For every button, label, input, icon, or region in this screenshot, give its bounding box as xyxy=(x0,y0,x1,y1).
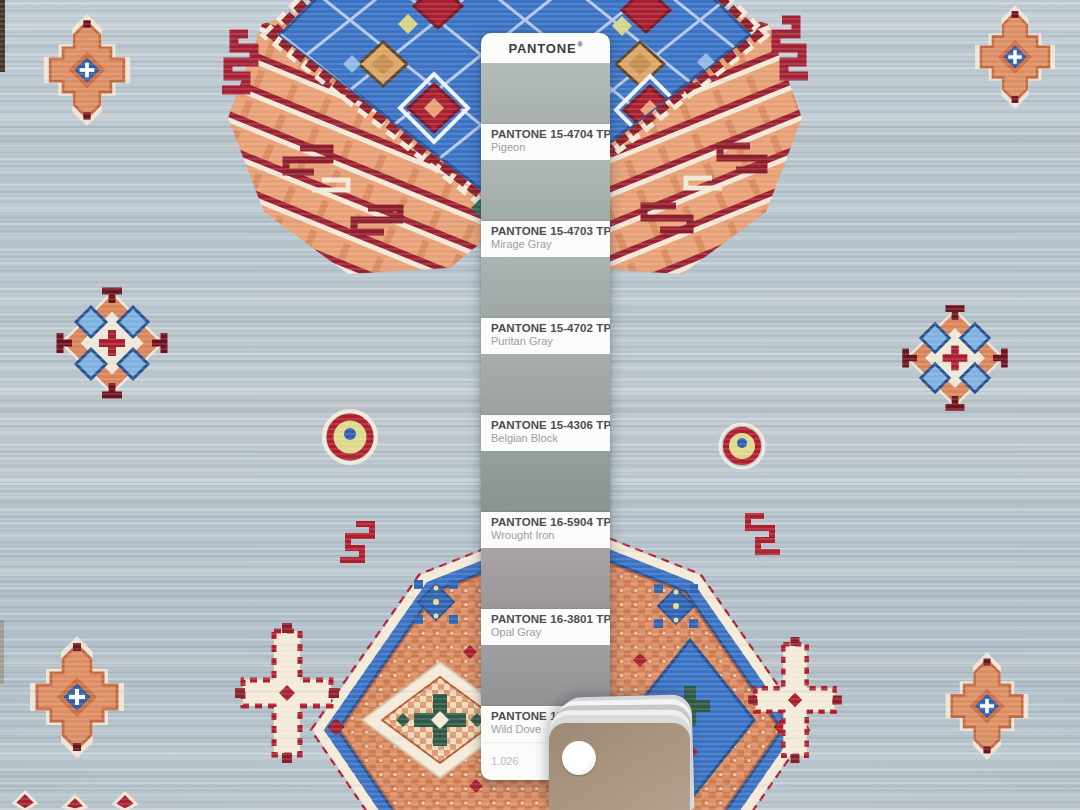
chip-code: PANTONE 15-4703 TPG xyxy=(491,225,604,237)
deck-top-card xyxy=(549,723,690,810)
chip-name: Pigeon xyxy=(491,141,604,153)
color-chip-wrought-iron xyxy=(481,451,610,512)
rug-edge-sliver xyxy=(0,0,5,72)
blue-flower-motif xyxy=(654,584,698,628)
corner-motif-bottom-left xyxy=(30,636,124,758)
chip-name: Opal Gray xyxy=(491,626,604,638)
color-chip-mirage-gray xyxy=(481,160,610,221)
chip-name: Wrought Iron xyxy=(491,529,604,541)
ring-dot-left xyxy=(324,411,376,463)
chip-code: PANTONE 15-4306 TPG xyxy=(491,419,604,431)
ring-dot-right xyxy=(720,424,764,468)
chip-label: PANTONE 15-4702 TPG Puritan Gray xyxy=(481,318,610,354)
chip-code: PANTONE 16-5904 TPG xyxy=(491,516,604,528)
chip-code: PANTONE 15-4704 TPG xyxy=(491,128,604,140)
rivet-hole-icon xyxy=(562,741,596,775)
flower-motif-right xyxy=(906,309,1005,408)
pantone-brand-text: PANTONE xyxy=(508,41,576,56)
bottom-edge-diamonds xyxy=(14,792,136,810)
chip-label: PANTONE 15-4306 TPG Belgian Block xyxy=(481,415,610,451)
pantone-logo: PANTONE® xyxy=(481,33,610,63)
registered-mark: ® xyxy=(577,41,582,48)
chip-label: PANTONE 16-5904 TPG Wrought Iron xyxy=(481,512,610,548)
corner-motif-top-right xyxy=(975,5,1055,109)
corner-motif-top-left xyxy=(44,14,130,126)
blue-flower-motif xyxy=(414,580,458,624)
color-chip-pigeon xyxy=(481,63,610,124)
pantone-strip: PANTONE® PANTONE 15-4704 TPG Pigeon PANT… xyxy=(481,33,610,780)
chip-label: PANTONE 15-4703 TPG Mirage Gray xyxy=(481,221,610,257)
color-chip-puritan-gray xyxy=(481,257,610,318)
chip-label: PANTONE 16-3801 TPG Opal Gray xyxy=(481,609,610,645)
chip-name: Puritan Gray xyxy=(491,335,604,347)
fan-deck xyxy=(546,696,693,810)
chip-code: PANTONE 15-4702 TPG xyxy=(491,322,604,334)
flower-motif-left xyxy=(60,291,164,395)
color-chip-belgian-block xyxy=(481,354,610,415)
chip-name: Belgian Block xyxy=(491,432,604,444)
chip-code: PANTONE 16-3801 TPG xyxy=(491,613,604,625)
chip-name: Mirage Gray xyxy=(491,238,604,250)
chip-label: PANTONE 15-4704 TPG Pigeon xyxy=(481,124,610,160)
rug-photo: PANTONE® PANTONE 15-4704 TPG Pigeon PANT… xyxy=(0,0,1080,810)
corner-motif-bottom-right xyxy=(946,652,1029,759)
color-chip-opal-gray xyxy=(481,548,610,609)
